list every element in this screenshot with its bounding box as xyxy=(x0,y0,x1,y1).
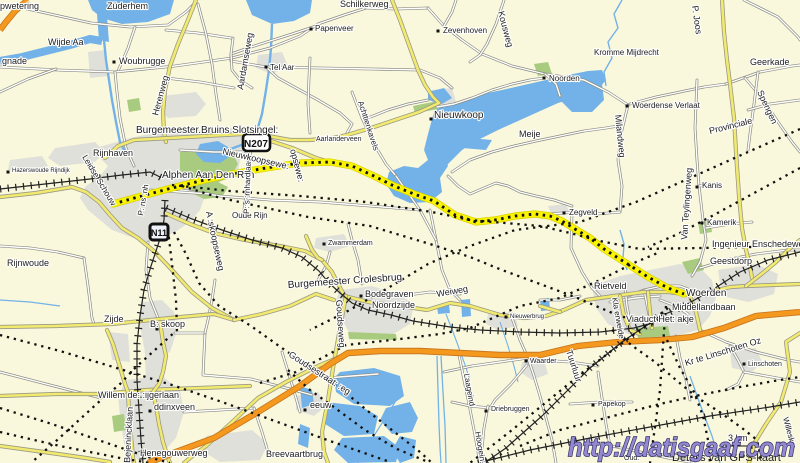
svg-text:Rijnhaven: Rijnhaven xyxy=(93,148,133,158)
svg-text:Burgemeester.Bruins Slotsingel: Burgemeester.Bruins Slotsingel: xyxy=(136,125,278,136)
svg-text:Breevaartbrug: Breevaartbrug xyxy=(266,449,323,459)
svg-text:Middellandbaan: Middellandbaan xyxy=(672,302,736,312)
svg-text:Wijde Aa: Wijde Aa xyxy=(48,37,84,47)
svg-text:Kanis: Kanis xyxy=(702,181,722,190)
svg-text:Geestdorp: Geestdorp xyxy=(710,256,752,266)
svg-text:Driebruggen: Driebruggen xyxy=(491,406,530,413)
svg-text:Linschoten: Linschoten xyxy=(748,361,782,368)
svg-text:N11: N11 xyxy=(151,228,167,238)
svg-text:Woerdense Verlaat: Woerdense Verlaat xyxy=(632,101,701,110)
svg-text:Zwammerdam: Zwammerdam xyxy=(328,240,373,247)
svg-text:eeuw: eeuw xyxy=(310,400,332,410)
svg-text:Nieuwerbrug: Nieuwerbrug xyxy=(510,314,544,320)
svg-text:Hazerswoude Rijndijk: Hazerswoude Rijndijk xyxy=(12,168,71,174)
svg-text:Viaduct Het: akje: Viaduct Het: akje xyxy=(626,314,694,324)
svg-text:Waarder: Waarder xyxy=(530,358,557,365)
svg-text:Geerkade: Geerkade xyxy=(750,57,790,67)
svg-text:Zegveld: Zegveld xyxy=(569,208,597,217)
svg-text:N207: N207 xyxy=(244,139,268,150)
svg-text:gnade: gnade xyxy=(2,56,27,66)
svg-text:Meije: Meije xyxy=(519,129,541,139)
svg-text:Kamerik: Kamerik xyxy=(707,218,737,227)
svg-text:Zijde: Zijde xyxy=(104,314,124,324)
svg-text:Züderhem: Züderhem xyxy=(107,1,148,11)
svg-text:Bodegraven: Bodegraven xyxy=(365,289,414,299)
svg-text:pwetering: pwetering xyxy=(0,1,39,11)
svg-text:Kromme Mijdrecht: Kromme Mijdrecht xyxy=(594,48,660,57)
svg-text:Nieuwkoop: Nieuwkoop xyxy=(434,110,484,121)
svg-text:Noordzijde: Noordzijde xyxy=(372,300,415,310)
svg-text:Woubrugge: Woubrugge xyxy=(119,56,165,66)
svg-text:Zevenhoven: Zevenhoven xyxy=(443,26,487,35)
svg-text:Alphen Aan Den Rijn: Alphen Aan Den Rijn xyxy=(162,170,254,181)
svg-text:ddinxveen: ddinxveen xyxy=(154,402,195,412)
svg-text:Schilkerweg: Schilkerweg xyxy=(340,0,389,9)
svg-text:http://datisgaaf.com: http://datisgaaf.com xyxy=(568,432,795,462)
svg-text:Tel Aar: Tel Aar xyxy=(270,63,295,72)
svg-text:Willem de: :ijgerlaan: Willem de: :ijgerlaan xyxy=(98,390,179,400)
svg-text:Henegouwerweg: Henegouwerweg xyxy=(140,448,208,458)
svg-text:Woerden: Woerden xyxy=(686,288,726,299)
svg-text:Aarlanderveen: Aarlanderveen xyxy=(316,136,362,143)
svg-text:Papekop: Papekop xyxy=(598,401,626,408)
svg-text:Rietveld: Rietveld xyxy=(594,281,627,291)
svg-text:B: skoop: B: skoop xyxy=(150,319,185,329)
svg-text:Ingenieur Enschedeweg: Ingenieur Enschedeweg xyxy=(712,239,800,249)
svg-text:Noorden: Noorden xyxy=(549,74,580,83)
svg-text:Rijnwoude: Rijnwoude xyxy=(7,258,49,268)
svg-text:Papenveer: Papenveer xyxy=(315,24,354,33)
